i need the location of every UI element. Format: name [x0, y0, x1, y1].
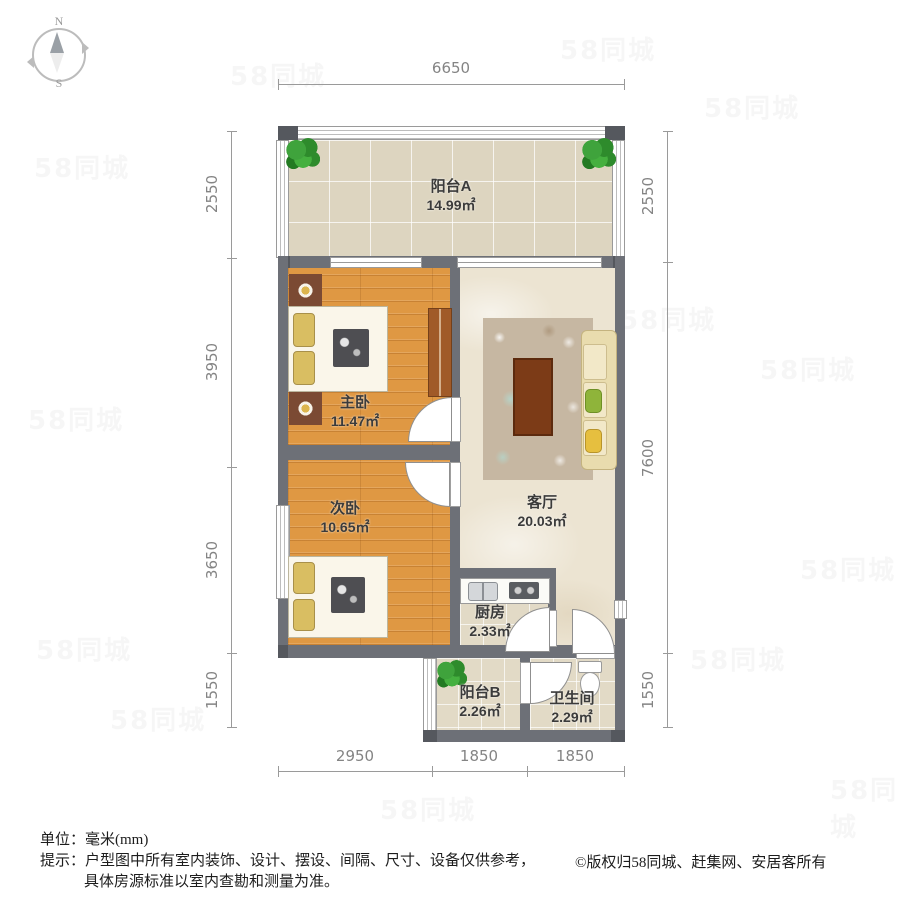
dimension-line — [278, 84, 625, 85]
compass-arrowhead-icon — [27, 56, 34, 68]
watermark: 58同城 — [620, 300, 716, 337]
wall-segment — [615, 256, 625, 742]
dimension-tick — [663, 131, 673, 132]
second-bed — [288, 556, 388, 638]
room-label-balcony-a: 阳台A 14.99㎡ — [391, 178, 511, 214]
wall-corner — [611, 730, 625, 742]
dimension-label: 1550 — [204, 660, 220, 720]
room-label-bathroom: 卫生间 2.29㎡ — [510, 690, 634, 726]
dimension-label: 2550 — [204, 164, 220, 224]
room-name: 客厅 — [482, 494, 602, 513]
compass-arrowhead-icon — [82, 42, 89, 54]
dimension-tick — [663, 653, 673, 654]
dimension-label: 3650 — [204, 530, 220, 590]
dimension-label: 2550 — [640, 166, 656, 226]
floorplan-image: 58同城 58同城 58同城 58同城 58同城 58同城 58同城 58同城 … — [0, 0, 900, 900]
sofa — [581, 330, 617, 470]
watermark: 58同城 — [830, 770, 900, 844]
dimension-line — [667, 131, 668, 727]
watermark: 58同城 — [560, 30, 656, 67]
dimension-label: 3950 — [204, 332, 220, 392]
dimension-line — [278, 771, 625, 772]
room-area: 2.29㎡ — [510, 709, 634, 727]
unit-value: 毫米(mm) — [85, 832, 148, 848]
tip-label: 提示： — [40, 853, 85, 869]
pillow — [293, 313, 315, 347]
dimension-tick — [227, 467, 237, 468]
room-area: 14.99㎡ — [391, 197, 511, 215]
dimension-line — [231, 131, 232, 727]
room-name: 次卧 — [285, 500, 405, 519]
dimension-tick — [663, 727, 673, 728]
dimension-tick — [227, 131, 237, 132]
tip-text: 具体房源标准以室内查勘和测量为准。 — [84, 874, 339, 890]
dimension-tick — [278, 766, 279, 777]
sliding-window — [330, 257, 422, 268]
footer-tip-line1: 提示：户型图中所有室内装饰、设计、摆设、间隔、尺寸、设备仅供参考， — [40, 849, 535, 870]
sofa-pillow-yellow — [585, 429, 602, 453]
sink-icon — [468, 582, 498, 601]
footer-unit-line: 单位：毫米(mm) — [40, 828, 148, 849]
watermark: 58同城 — [690, 640, 786, 677]
room-area: 10.65㎡ — [285, 519, 405, 537]
dimension-label: 1850 — [515, 748, 635, 764]
dimension-label: 2950 — [295, 748, 415, 764]
footer-copyright: ©版权归58同城、赶集网、安居客所有 — [575, 851, 826, 872]
coffee-table — [513, 358, 553, 436]
wall-corner — [423, 730, 437, 742]
dimension-tick — [624, 79, 625, 90]
bed-tray — [333, 329, 369, 367]
room-name: 厨房 — [440, 604, 540, 623]
dimension-tick — [227, 653, 237, 654]
bed-tray — [331, 577, 365, 613]
window — [278, 126, 625, 140]
room-area: 2.33㎡ — [440, 623, 540, 641]
dimension-tick — [278, 79, 279, 90]
sofa-pillow-green — [585, 389, 602, 413]
dimension-label: 1550 — [640, 660, 656, 720]
watermark: 58同城 — [36, 630, 132, 667]
door-opening — [450, 462, 461, 507]
watermark: 58同城 — [380, 790, 476, 827]
master-bed — [288, 306, 388, 392]
dimension-tick — [527, 766, 528, 777]
room-name: 主卧 — [295, 394, 415, 413]
wall-segment — [423, 730, 625, 742]
compass-south-label: S — [52, 76, 66, 91]
wall-segment — [278, 445, 460, 460]
dimension-tick — [663, 262, 673, 263]
dimension-tick — [227, 258, 237, 259]
dimension-tick — [432, 766, 433, 777]
footer-tip-line2: 具体房源标准以室内查勘和测量为准。 — [84, 870, 339, 891]
room-label-master-bedroom: 主卧 11.47㎡ — [295, 394, 415, 430]
pillow — [293, 351, 315, 385]
room-label-kitchen: 厨房 2.33㎡ — [440, 604, 540, 640]
room-area: 20.03㎡ — [482, 513, 602, 531]
dimension-label: 7600 — [640, 428, 656, 488]
watermark: 58同城 — [110, 700, 206, 737]
bedside-mat-lamp — [289, 274, 322, 307]
plant-icon — [286, 138, 320, 172]
compass: N S — [22, 14, 94, 92]
room-label-living-room: 客厅 20.03㎡ — [482, 494, 602, 530]
tip-text: 户型图中所有室内装饰、设计、摆设、间隔、尺寸、设备仅供参考， — [85, 853, 535, 869]
wardrobe — [428, 308, 452, 397]
wall-segment — [450, 568, 556, 578]
watermark: 58同城 — [28, 400, 124, 437]
sofa-cushion — [583, 344, 607, 380]
room-name: 阳台A — [391, 178, 511, 197]
watermark: 58同城 — [760, 350, 856, 387]
wall-corner — [278, 645, 288, 658]
window — [614, 600, 627, 619]
compass-north-label: N — [52, 14, 66, 29]
watermark: 58同城 — [34, 148, 130, 185]
stove-icon — [509, 582, 539, 599]
dimension-tick — [227, 727, 237, 728]
pillow — [293, 562, 315, 594]
unit-label: 单位： — [40, 832, 85, 848]
dimension-label: 6650 — [391, 60, 511, 76]
pillow — [293, 599, 315, 631]
room-label-second-bedroom: 次卧 10.65㎡ — [285, 500, 405, 536]
kitchen-counter — [460, 578, 550, 604]
dimension-tick — [624, 766, 625, 777]
watermark: 58同城 — [800, 550, 896, 587]
watermark: 58同城 — [704, 88, 800, 125]
sliding-door — [457, 257, 602, 268]
room-name: 卫生间 — [510, 690, 634, 709]
room-area: 11.47㎡ — [295, 413, 415, 431]
compass-needle-north-icon — [50, 32, 64, 53]
plant-icon — [582, 138, 616, 172]
